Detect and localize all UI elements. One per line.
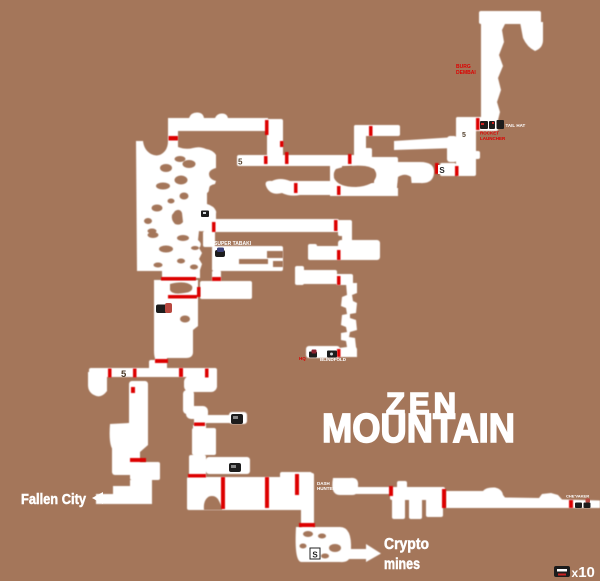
svg-text:S: S [312,551,318,560]
svg-text:ROCKET: ROCKET [480,131,499,136]
svg-text:HQ: HQ [299,356,306,361]
svg-text:Crypto: Crypto [384,536,429,553]
svg-text:BLINDFOLD: BLINDFOLD [320,357,347,362]
svg-text:S: S [439,166,445,175]
svg-text:SUPER TABAKI: SUPER TABAKI [214,241,252,247]
svg-text:TAIL HAT: TAIL HAT [506,123,526,128]
svg-text:DEMBAI: DEMBAI [456,70,476,76]
svg-text:MOUNTAIN: MOUNTAIN [322,405,515,451]
svg-text:x10: x10 [572,564,595,581]
svg-text:CHE'VAKER: CHE'VAKER [566,494,589,499]
svg-text:mines: mines [384,556,420,573]
svg-text:Fallen City: Fallen City [21,492,86,508]
svg-text:5: 5 [462,132,466,139]
svg-text:5: 5 [121,369,127,380]
svg-text:HUNTER: HUNTER [317,486,336,491]
svg-text:LAUNCHER: LAUNCHER [480,136,506,141]
svg-text:5: 5 [238,158,243,167]
